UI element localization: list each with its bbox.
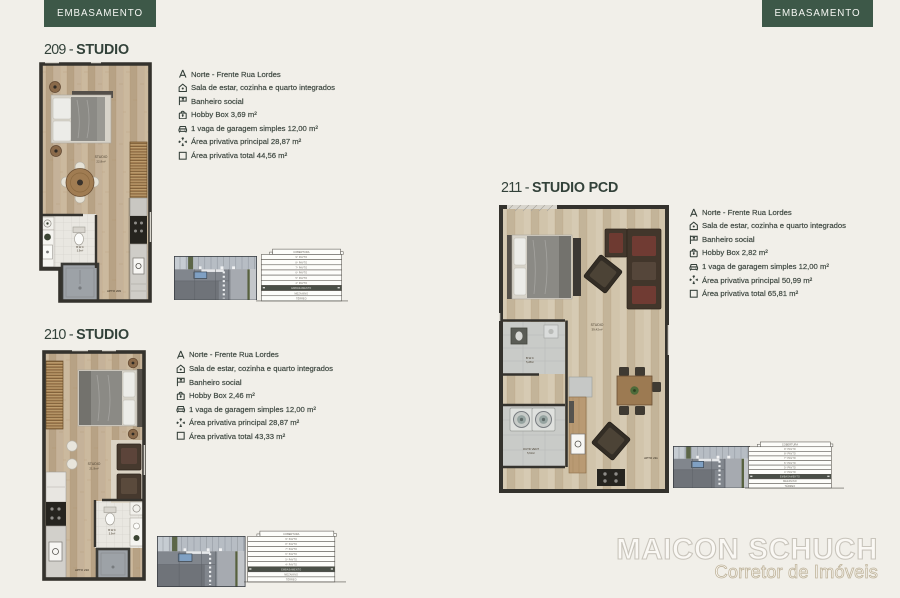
svg-text:B.W.C: B.W.C xyxy=(76,245,84,249)
svg-text:TÉRREO: TÉRREO xyxy=(286,579,297,582)
svg-text:5,28m²: 5,28m² xyxy=(526,361,534,364)
svg-text:EMBASAMENTO: EMBASAMENTO xyxy=(291,287,311,290)
svg-text:COBERTURA: COBERTURA xyxy=(782,443,799,447)
svg-text:3,9m²: 3,9m² xyxy=(109,533,116,536)
svg-text:STUDIO: STUDIO xyxy=(591,323,604,327)
svg-text:22,8m²: 22,8m² xyxy=(96,159,105,163)
svg-text:APTO 209: APTO 209 xyxy=(107,289,121,293)
svg-text:STUDIO: STUDIO xyxy=(88,462,101,466)
svg-text:B.W.C: B.W.C xyxy=(108,528,116,532)
svg-text:STUDIO: STUDIO xyxy=(95,155,108,159)
svg-text:3,9m²: 3,9m² xyxy=(77,250,84,253)
svg-text:COBERTURA: COBERTURA xyxy=(283,532,300,536)
svg-text:5,61m²: 5,61m² xyxy=(527,452,535,455)
svg-text:B.W.C: B.W.C xyxy=(526,356,534,360)
svg-text:39,42m²: 39,42m² xyxy=(591,327,602,331)
svg-text:EMBASAMENTO: EMBASAMENTO xyxy=(780,476,800,479)
svg-text:EMBASAMENTO: EMBASAMENTO xyxy=(281,568,301,571)
svg-text:MEZANINO: MEZANINO xyxy=(783,480,797,483)
svg-text:OUTD VENT: OUTD VENT xyxy=(523,447,539,451)
svg-text:TÉRREO: TÉRREO xyxy=(785,485,796,488)
svg-text:TÉRREO: TÉRREO xyxy=(296,297,307,300)
svg-text:MEZANINO: MEZANINO xyxy=(295,292,309,295)
svg-text:21,9m²: 21,9m² xyxy=(89,466,98,470)
svg-text:MEZANINO: MEZANINO xyxy=(284,573,298,576)
svg-text:APTO 211: APTO 211 xyxy=(644,456,658,460)
svg-text:COBERTURA: COBERTURA xyxy=(293,250,310,254)
svg-text:APTO 210: APTO 210 xyxy=(75,568,89,572)
